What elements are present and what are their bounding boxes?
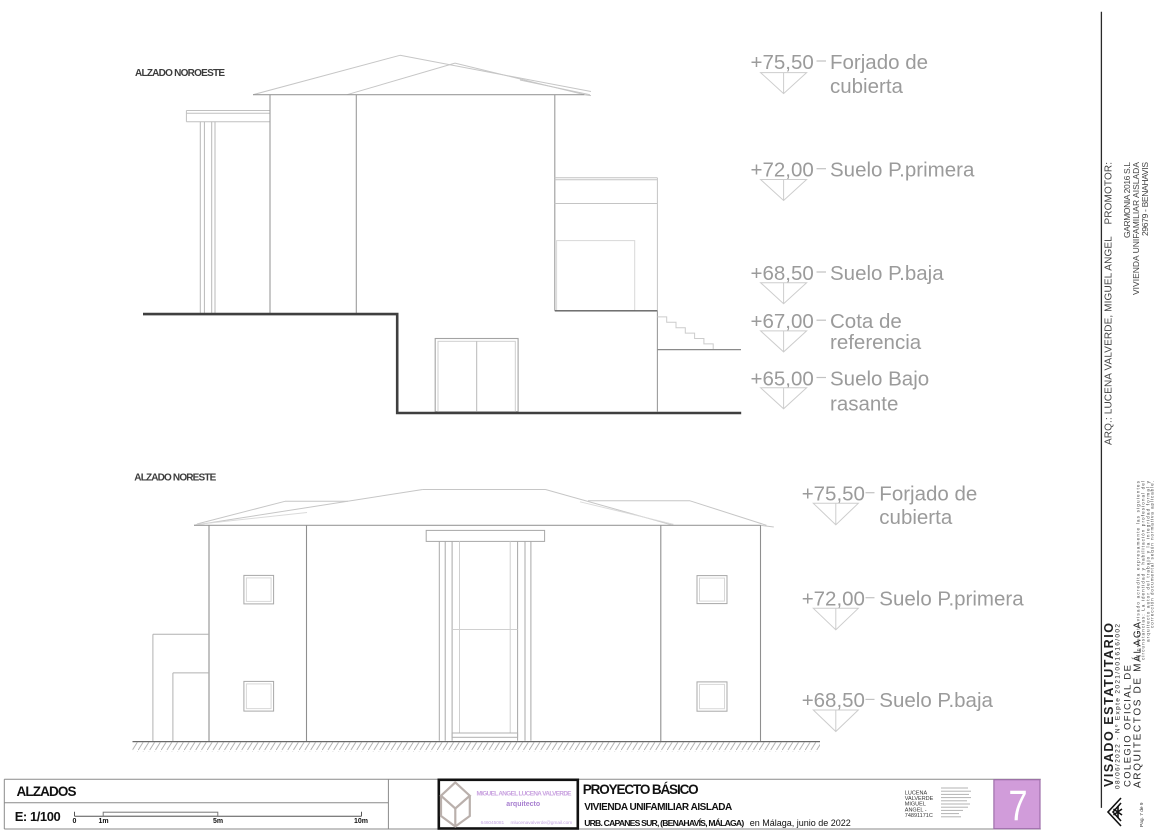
svg-text:Suelo P.baja: Suelo P.baja [879, 689, 993, 712]
svg-text:PROYECTO BÁSICO: PROYECTO BÁSICO [583, 782, 699, 797]
svg-text:Pag. 7 de 9: Pag. 7 de 9 [1139, 802, 1145, 827]
svg-text:08/06/2022 - Nº Expte 2021/001: 08/06/2022 - Nº Expte 2021/001616/002 [1115, 624, 1122, 789]
svg-text:MIGUEL ANGEL LUCENA VALVERDE: MIGUEL ANGEL LUCENA VALVERDE [477, 790, 572, 797]
svg-text:1m: 1m [98, 818, 108, 825]
svg-text:10m: 10m [354, 818, 368, 825]
svg-text:cubierta: cubierta [879, 506, 953, 529]
svg-text:+75,50: +75,50 [751, 51, 814, 74]
svg-text:Suelo P.primera: Suelo P.primera [879, 588, 1024, 611]
svg-text:+68,50: +68,50 [751, 262, 814, 285]
svg-text:URB. CAPANES SUR, (BENAHAVÍS,: URB. CAPANES SUR, (BENAHAVÍS, MÁLAGA) [584, 818, 744, 828]
svg-text:ARQ.: LUCENA VALVERDE, MIGUEL: ARQ.: LUCENA VALVERDE, MIGUEL ANGEL PROM… [1104, 162, 1115, 445]
svg-text:+72,00: +72,00 [751, 159, 814, 182]
svg-text:en Málaga, junio de 2022: en Málaga, junio de 2022 [750, 818, 851, 828]
svg-text:Suelo P.primera: Suelo P.primera [830, 159, 975, 182]
svg-text:VIVIENDA UNIFAMILIAR AISLADA: VIVIENDA UNIFAMILIAR AISLADA [584, 802, 732, 813]
svg-text:+68,50: +68,50 [802, 689, 865, 712]
svg-text:Suelo Bajo: Suelo Bajo [830, 367, 929, 390]
svg-text:+75,50: +75,50 [802, 483, 865, 506]
svg-text:E: 1/100: E: 1/100 [15, 809, 61, 824]
svg-text:ALZADO NOROESTE: ALZADO NOROESTE [135, 68, 225, 79]
svg-text:5m: 5m [213, 818, 223, 825]
svg-text:ARQUITECTOS DE MÁLAGA: ARQUITECTOS DE MÁLAGA [1131, 622, 1144, 788]
svg-text:+67,00: +67,00 [751, 310, 814, 333]
svg-text:646045081 mlucenavalverde@: 646045081 mlucenavalverde@gmail.com [481, 820, 573, 826]
svg-text:0: 0 [73, 818, 77, 825]
svg-text:corrección documental según no: corrección documental según normativa ap… [1150, 481, 1154, 628]
svg-text:Cota de: Cota de [830, 310, 902, 333]
svg-text:referencia: referencia [830, 331, 922, 354]
svg-text:+72,00: +72,00 [802, 588, 865, 611]
svg-text:7: 7 [1009, 782, 1028, 830]
svg-text:Forjado de: Forjado de [830, 51, 928, 74]
svg-text:Suelo P.baja: Suelo P.baja [830, 262, 944, 285]
svg-text:74891171C: 74891171C [905, 813, 933, 819]
svg-text:rasante: rasante [830, 393, 898, 416]
svg-text:ALZADOS: ALZADOS [17, 784, 77, 799]
svg-text:arquitecto: arquitecto [506, 801, 540, 808]
svg-text:+65,00: +65,00 [751, 367, 814, 390]
svg-text:29679 - BENAHAVIS: 29679 - BENAHAVIS [1140, 162, 1150, 236]
svg-text:ALZADO NORESTE: ALZADO NORESTE [134, 473, 216, 484]
svg-text:Forjado de: Forjado de [879, 483, 977, 506]
svg-text:cubierta: cubierta [830, 75, 904, 98]
